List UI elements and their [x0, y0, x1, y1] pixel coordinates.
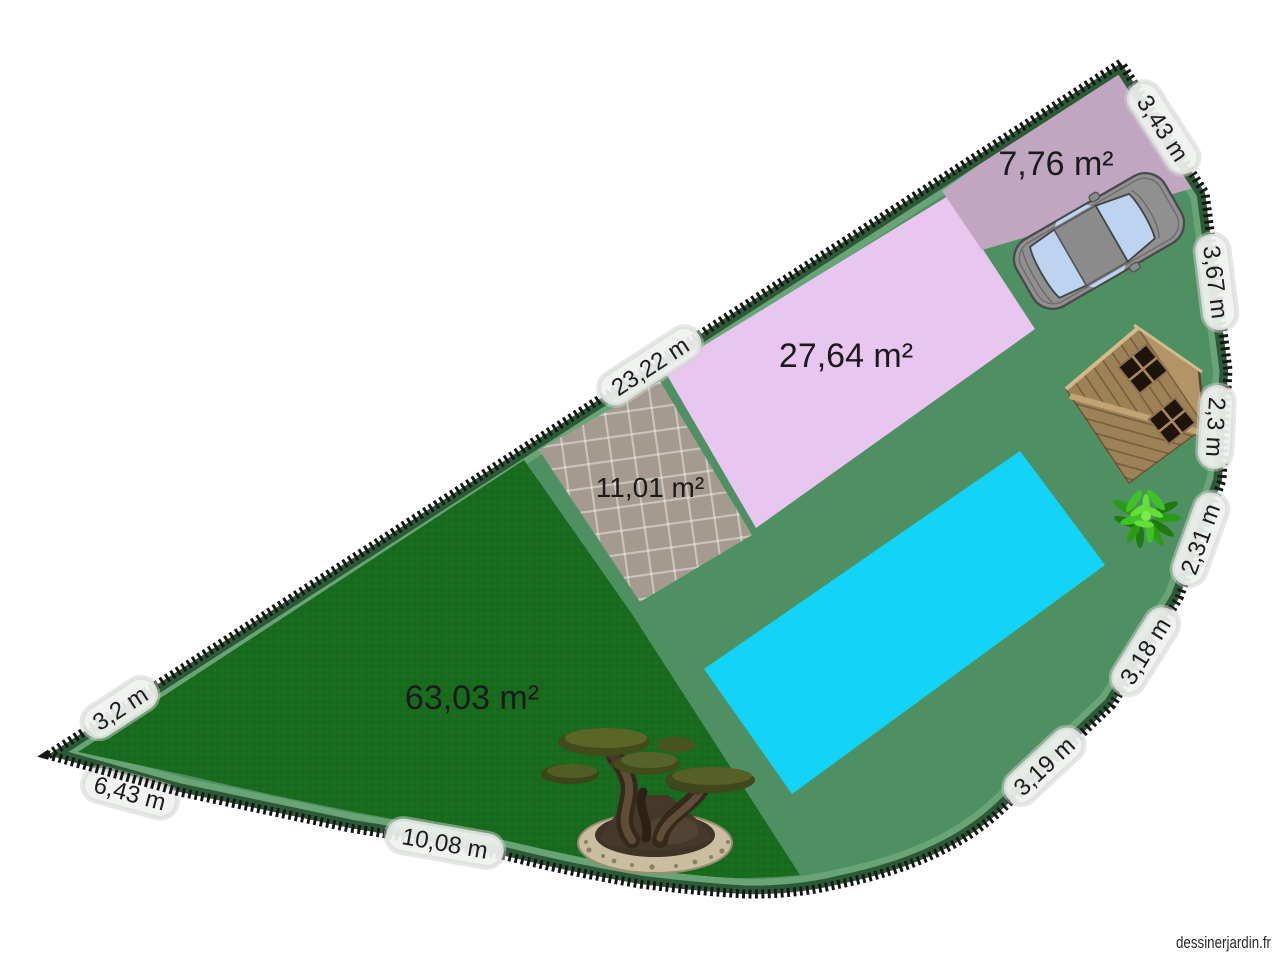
svg-text:27,64 m²: 27,64 m² — [779, 337, 913, 375]
svg-text:dessinerjardin.fr: dessinerjardin.fr — [1176, 934, 1271, 952]
svg-text:63,03 m²: 63,03 m² — [405, 679, 539, 717]
svg-text:11,01 m²: 11,01 m² — [596, 472, 704, 503]
svg-text:2,3 m: 2,3 m — [1200, 396, 1230, 457]
svg-text:7,76 m²: 7,76 m² — [998, 145, 1113, 183]
